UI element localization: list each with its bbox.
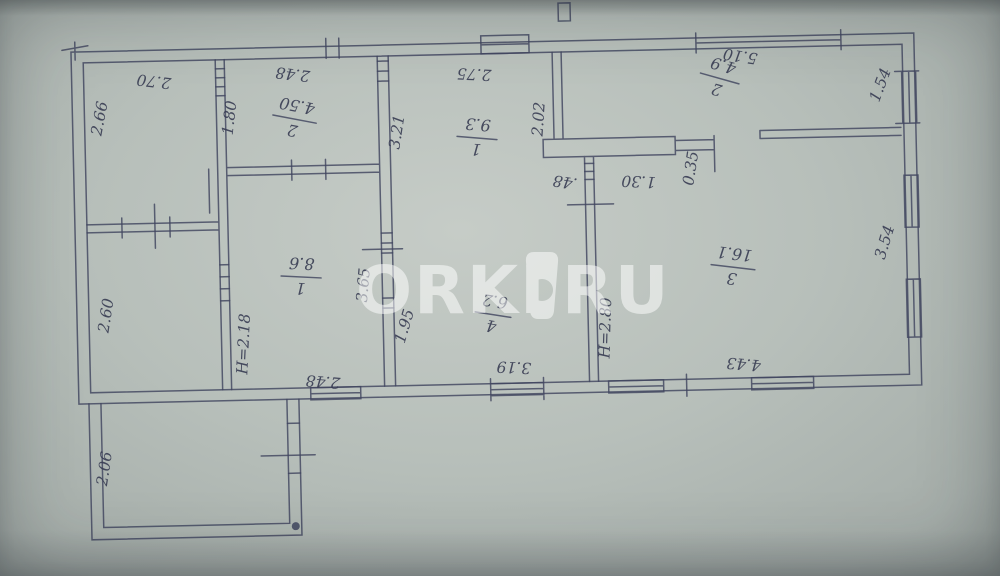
corner-dot (292, 522, 300, 530)
room-number: 2 (286, 120, 301, 141)
room-label-8-6: 1 8.6 (280, 253, 322, 299)
dim-0-35: 0.35 (679, 150, 702, 187)
dim-3-19: 3.19 (496, 357, 531, 377)
watermark-text-right: RU (562, 252, 670, 329)
dim-1-54: 1.54 (866, 66, 895, 105)
dim-2-66: 2.66 (87, 100, 111, 138)
walls-annex (89, 399, 302, 540)
dim-2-48-top: 2.48 (274, 63, 312, 85)
room-number: 2 (709, 79, 725, 100)
dim-2-06: 2.06 (93, 450, 116, 488)
dim-h-2-18: H=2.18 (233, 313, 254, 376)
dim-1-80: 1.80 (219, 100, 241, 137)
dim-2-75: 2.75 (457, 64, 493, 84)
dim-3-54: 3.54 (871, 223, 898, 261)
room-area: 16.1 (716, 242, 754, 265)
dim-2-60: 2.60 (94, 297, 117, 335)
room-area: 4.50 (278, 93, 318, 118)
room-area: 8.6 (289, 253, 315, 273)
room-number: 3 (726, 269, 738, 289)
walls-interior (83, 44, 906, 392)
dim-2-70: 2.70 (136, 70, 174, 92)
dim-0-48: .48 (551, 171, 578, 193)
room-area: 9.3 (465, 114, 492, 135)
dim-2-02: 2.02 (528, 101, 548, 138)
room-number: 1 (295, 279, 306, 298)
room-number: 1 (470, 140, 482, 160)
dim-3-21: 3.21 (385, 113, 408, 150)
dim-1-30: 1.30 (621, 171, 656, 191)
room-label-16-1: 3 16.1 (709, 242, 758, 291)
room-label-9-3: 1 9.3 (455, 113, 498, 160)
photographed-paper: 2 4.50 1 9.3 2 4.9 1 8.6 4 (0, 0, 1000, 576)
room-label-4-50: 2 4.50 (269, 92, 320, 143)
hatch-and-stove-marks (117, 2, 619, 477)
dim-2-48-bottom: 2.48 (305, 371, 342, 392)
floor-plan-sketch: 2 4.50 1 9.3 2 4.9 1 8.6 4 (0, 0, 1000, 576)
watermark-text-left: ORKI (356, 252, 547, 329)
dim-4-43: 4.43 (726, 354, 763, 375)
watermark: ORKI RU (356, 252, 670, 329)
windows (303, 26, 926, 405)
